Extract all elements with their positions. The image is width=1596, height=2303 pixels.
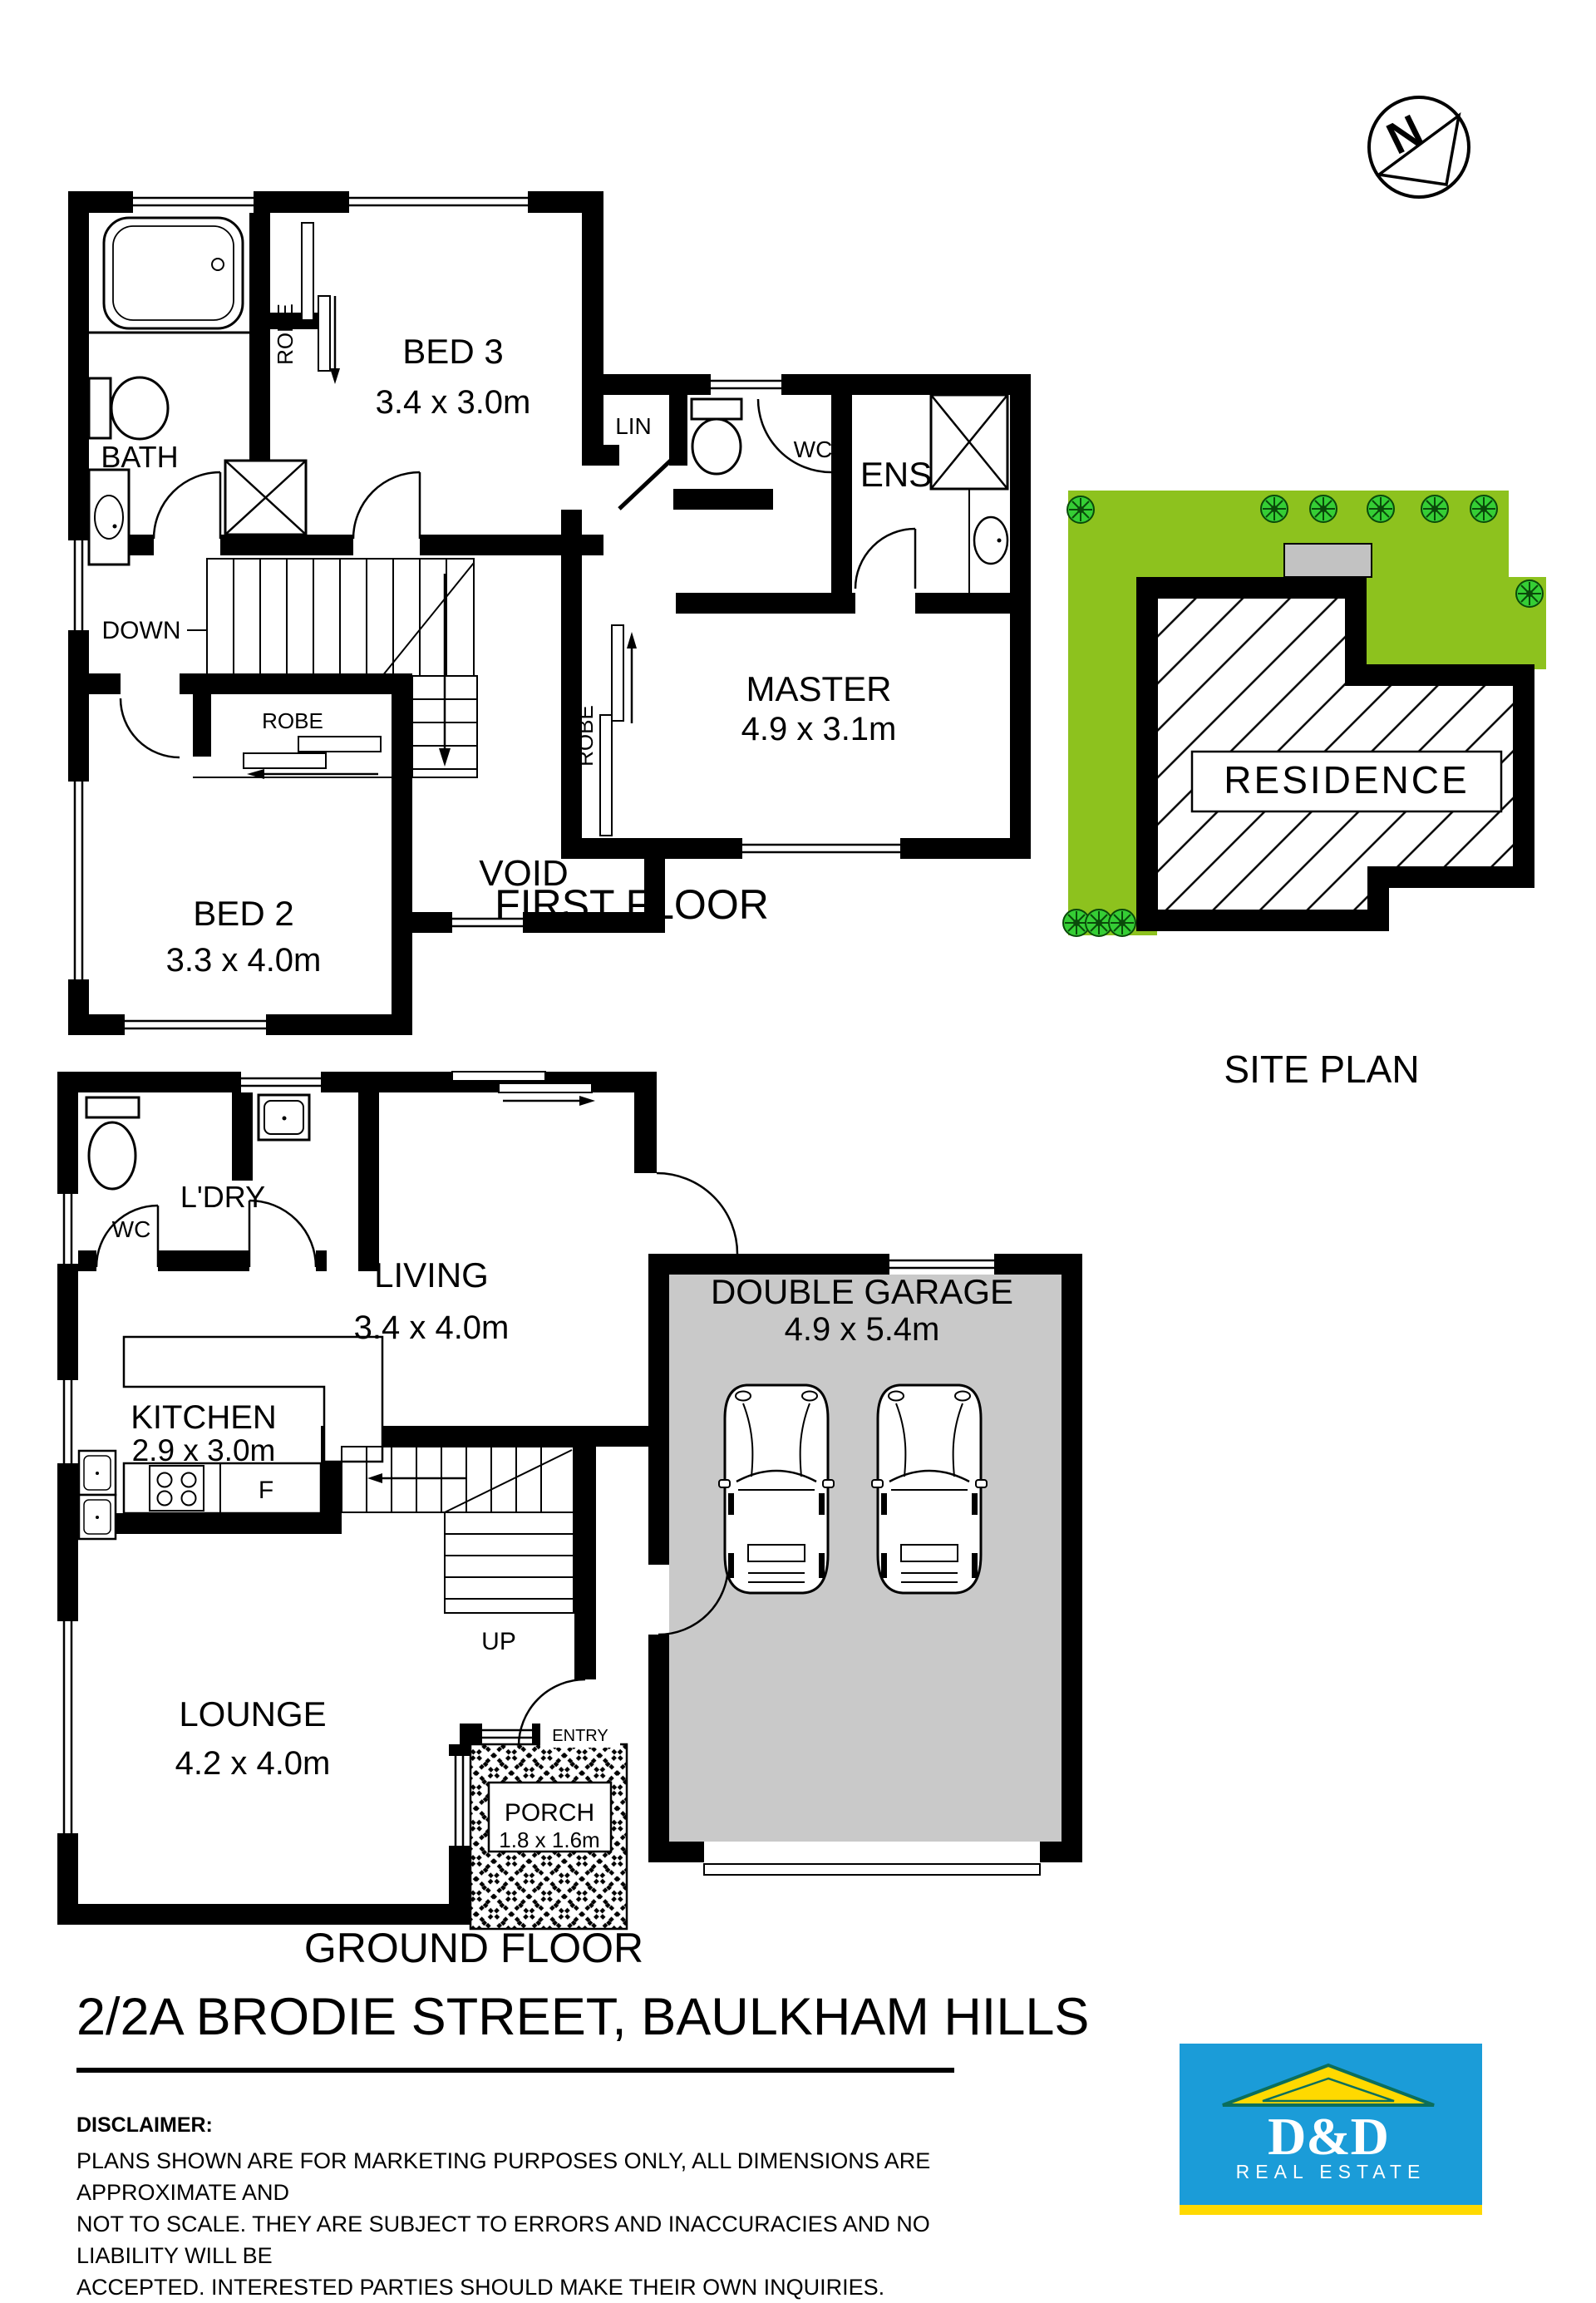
porch-dims: 1.8 x 1.6m — [499, 1827, 599, 1852]
gf-toilet-tank — [86, 1097, 139, 1117]
disclaimer-heading: DISCLAIMER: — [76, 2113, 213, 2138]
title-underline — [76, 2068, 954, 2073]
up-label: UP — [481, 1628, 516, 1655]
bath-label: BATH — [101, 440, 178, 474]
bed3-robe-doors — [302, 223, 340, 384]
agency-logo-graphic: D&D REAL ESTATE — [1180, 2044, 1482, 2215]
wc-label: WC — [794, 436, 833, 462]
living-dims: 3.4 x 4.0m — [354, 1309, 510, 1346]
down-label: DOWN — [102, 617, 181, 644]
page-title: 2/2A BRODIE STREET, BAULKHAM HILLS — [76, 1987, 1089, 2047]
entry-label: ENTRY — [552, 1727, 608, 1745]
compass-n-label: N — [1379, 105, 1430, 164]
bed3-dims: 3.4 x 3.0m — [376, 384, 531, 421]
first-floor-labels: BED 3 3.4 x 3.0m BATH ROBE LIN WC ENS DO… — [101, 303, 932, 979]
logo-tagline: REAL ESTATE — [1236, 2161, 1426, 2182]
bath-toilet-bowl — [111, 377, 168, 439]
laundry-sink — [259, 1095, 309, 1140]
ens-label: ENS — [860, 455, 932, 494]
bath-toilet-tank — [89, 378, 111, 438]
ens-sink — [974, 517, 1007, 564]
ground-floor-title: GROUND FLOOR — [304, 1925, 643, 1971]
gf-wc-label: WC — [112, 1216, 151, 1242]
disclaimer-text: PLANS SHOWN ARE FOR MARKETING PURPOSES O… — [76, 2145, 991, 2303]
agency-logo: D&D REAL ESTATE — [1180, 2044, 1482, 2215]
lin-label: LIN — [615, 413, 652, 439]
site-plan: RESIDENCE SITE PLAN — [1063, 491, 1546, 1091]
north-compass-icon: N — [1369, 97, 1469, 197]
master-robe-label: ROBE — [573, 705, 598, 767]
shower-box — [225, 461, 306, 535]
stairs-up — [342, 1447, 574, 1613]
kitchen-dims: 2.9 x 3.0m — [132, 1433, 276, 1467]
disclaimer-line: NOT TO SCALE. THEY ARE SUBJECT TO ERRORS… — [76, 2208, 991, 2271]
lounge-dims: 4.2 x 4.0m — [175, 1745, 331, 1782]
gf-toilet-bowl — [89, 1122, 135, 1189]
laundry-label: L'DRY — [180, 1180, 265, 1214]
living-label: LIVING — [374, 1255, 489, 1295]
wc-toilet-tank — [692, 399, 741, 419]
first-floor-title: FIRST FLOOR — [495, 881, 769, 928]
ens-shower-box — [931, 395, 1007, 489]
wc-toilet-bowl — [692, 419, 741, 474]
porch-label: PORCH — [505, 1799, 594, 1827]
garage-dims: 4.9 x 5.4m — [785, 1311, 940, 1348]
bed3-label: BED 3 — [402, 332, 503, 371]
site-driveway — [1284, 544, 1372, 577]
bed2-robe-shelves — [193, 737, 392, 779]
logo-name: D&D — [1268, 2107, 1389, 2166]
bed2-robe-label: ROBE — [262, 708, 323, 733]
residence-label: RESIDENCE — [1224, 758, 1469, 801]
bed2-label: BED 2 — [193, 894, 293, 933]
master-dims: 4.9 x 3.1m — [741, 711, 897, 747]
ground-floor-plan: WC L'DRY LIVING 3.4 x 4.0m KITCHEN 2.9 x… — [57, 1072, 1082, 1971]
disclaimer-line: PLANS SHOWN ARE FOR MARKETING PURPOSES O… — [76, 2145, 991, 2208]
floor-plan-canvas: N RESIDENCE SITE PLAN — [0, 0, 1596, 2257]
kitchen-sink — [79, 1451, 116, 1539]
site-plan-title: SITE PLAN — [1224, 1048, 1419, 1091]
master-label: MASTER — [746, 669, 891, 708]
first-floor-plan: BED 3 3.4 x 3.0m BATH ROBE LIN WC ENS DO… — [68, 191, 1031, 1035]
bed2-dims: 3.3 x 4.0m — [166, 942, 322, 979]
kitchen-label: KITCHEN — [131, 1399, 277, 1436]
stove — [150, 1466, 204, 1511]
bed3-robe-label: ROBE — [273, 303, 298, 365]
garage-door — [704, 1864, 1040, 1875]
disclaimer-line: ACCEPTED. INTERESTED PARTIES SHOULD MAKE… — [76, 2271, 991, 2303]
fridge-label: F — [259, 1477, 273, 1504]
garage-label: DOUBLE GARAGE — [711, 1272, 1013, 1311]
master-robe-doors — [600, 625, 637, 836]
lounge-label: LOUNGE — [179, 1694, 326, 1733]
